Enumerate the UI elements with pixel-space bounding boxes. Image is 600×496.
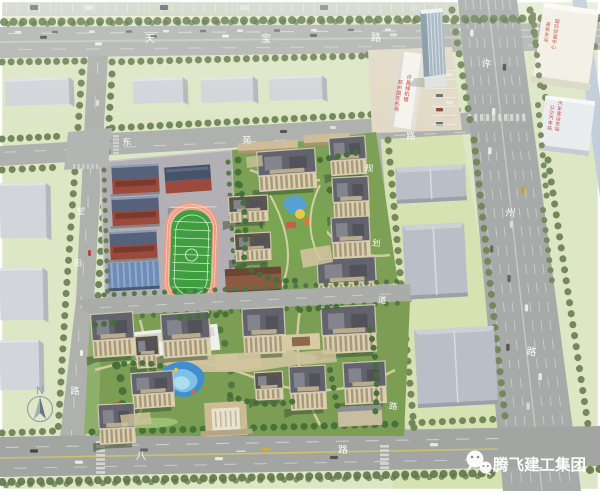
- svg-text:划: 划: [372, 238, 381, 249]
- svg-text:路: 路: [389, 401, 399, 412]
- svg-text:腾飞建工集团: 腾飞建工集团: [493, 455, 586, 474]
- svg-text:N: N: [36, 385, 44, 397]
- svg-text:路: 路: [526, 344, 538, 358]
- svg-text:望: 望: [77, 206, 85, 216]
- svg-text:田: 田: [74, 259, 82, 268]
- svg-text:东: 东: [122, 136, 132, 147]
- svg-text:路: 路: [338, 443, 348, 456]
- svg-text:规: 规: [365, 163, 375, 174]
- svg-text:八: 八: [136, 451, 146, 462]
- svg-text:州: 州: [505, 206, 516, 219]
- svg-text:苑: 苑: [242, 134, 252, 145]
- svg-text:路: 路: [406, 130, 416, 141]
- svg-text:路: 路: [70, 385, 79, 396]
- svg-text:道: 道: [378, 295, 388, 306]
- svg-text:一: 一: [236, 447, 246, 458]
